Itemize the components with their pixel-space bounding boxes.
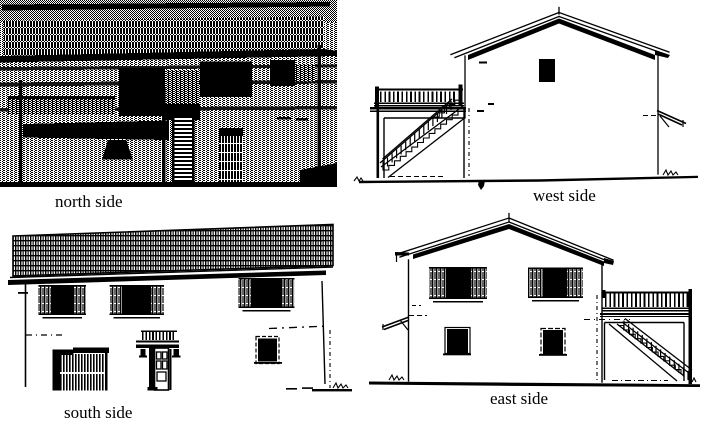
svg-text:north side: north side — [55, 192, 123, 211]
svg-text:west side: west side — [533, 186, 596, 205]
svg-text:south side: south side — [64, 403, 132, 422]
svg-text:east side: east side — [490, 389, 548, 408]
